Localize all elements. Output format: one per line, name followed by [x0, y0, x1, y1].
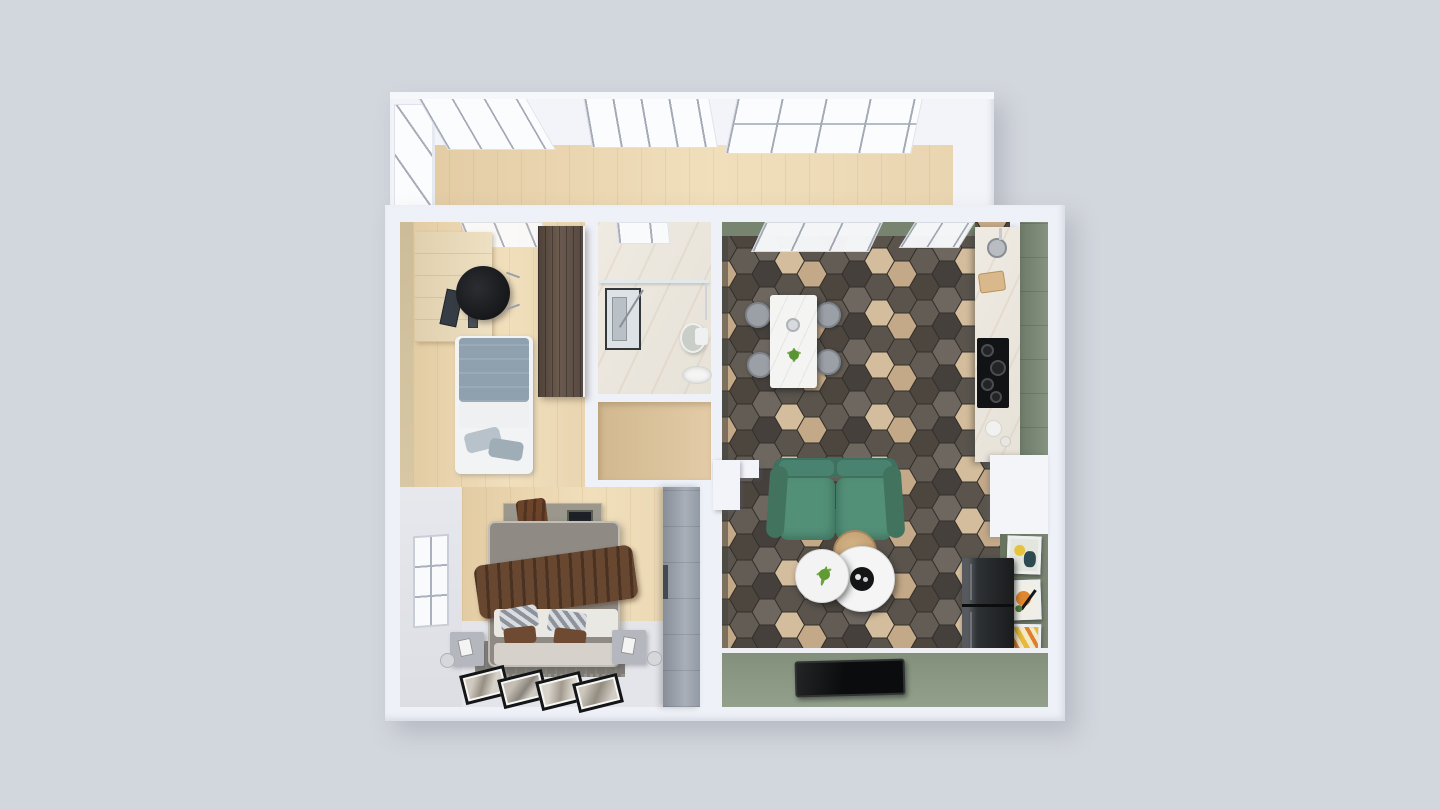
office-accent-wall [400, 222, 413, 487]
dining-chair [815, 349, 841, 375]
table-plant [786, 348, 802, 362]
office-bed-fold [459, 402, 529, 428]
burner [981, 378, 994, 391]
bowl [1000, 436, 1011, 447]
fridge [962, 558, 1014, 656]
bedroom-window [413, 534, 449, 629]
bedroom-wardrobe-handle [663, 565, 668, 599]
cup [863, 577, 868, 582]
nightstand-right [612, 630, 646, 664]
balcony-window-right [725, 98, 923, 154]
office-wardrobe [538, 226, 585, 397]
balcony-window-left [418, 98, 556, 150]
fridge-handle [970, 612, 972, 648]
plate-stack [985, 420, 1002, 437]
office-single-bed [455, 336, 533, 474]
picture-art [578, 679, 618, 707]
toilet-tank [695, 328, 708, 345]
basket [440, 653, 455, 668]
burner [981, 344, 994, 357]
apartment-main-block [385, 205, 1065, 721]
living-window-left [751, 222, 883, 252]
room-living-kitchen [722, 222, 1048, 707]
coffee-table-plant [814, 566, 834, 588]
cup [855, 574, 861, 580]
dining-table [770, 295, 817, 388]
room-bathroom [598, 222, 711, 394]
leaf [787, 348, 801, 362]
cutting-board [978, 270, 1007, 293]
fridge-split [962, 604, 1014, 607]
burner [990, 391, 1002, 403]
sofa-seat-cushion [836, 478, 891, 540]
floor-plan-render [0, 0, 1440, 810]
balcony-top-wall [390, 92, 994, 99]
entry-wall-stub [713, 460, 740, 510]
shower-glass-partition [600, 280, 709, 283]
room-hallway [598, 402, 711, 480]
room-home-office [400, 222, 585, 487]
dining-chair [745, 302, 771, 328]
dining-chair [815, 302, 841, 328]
tv [795, 659, 906, 698]
cooktop [977, 338, 1009, 408]
kitchen-sink [987, 238, 1007, 258]
white-cabinet [990, 455, 1048, 537]
bed-foot-fold [494, 643, 618, 665]
kitchen-faucet [999, 228, 1002, 240]
balcony-window-middle [583, 98, 718, 148]
photo-frame [457, 638, 473, 657]
bathroom-balcony-window [616, 222, 670, 244]
office-bed-duvet [459, 338, 529, 402]
bathroom-sink [682, 366, 712, 384]
sofa-seat-cushion [780, 478, 835, 540]
office-bed-pillow [488, 437, 525, 461]
sofa [773, 458, 898, 550]
coffee-table-tray [850, 567, 874, 591]
balcony-floor [425, 145, 953, 209]
room-balcony [390, 92, 994, 215]
burner [990, 360, 1006, 376]
bedroom-wardrobe [663, 487, 700, 707]
living-left-wall-shadow [722, 222, 728, 657]
balcony-left-window [394, 104, 435, 210]
room-bedroom [400, 487, 700, 707]
office-chair [456, 266, 510, 320]
nightstand-left [450, 632, 484, 666]
fruit-plate [786, 318, 800, 332]
towel-rail [705, 284, 707, 320]
poster-shape [1024, 551, 1037, 567]
photo-frame [621, 636, 637, 655]
basket [647, 651, 662, 666]
double-bed [488, 521, 620, 667]
kitchen-cabinets-green [1020, 222, 1048, 462]
hallway-floor [598, 402, 711, 480]
poster-shape [1015, 605, 1022, 612]
fridge-handle [970, 564, 972, 600]
